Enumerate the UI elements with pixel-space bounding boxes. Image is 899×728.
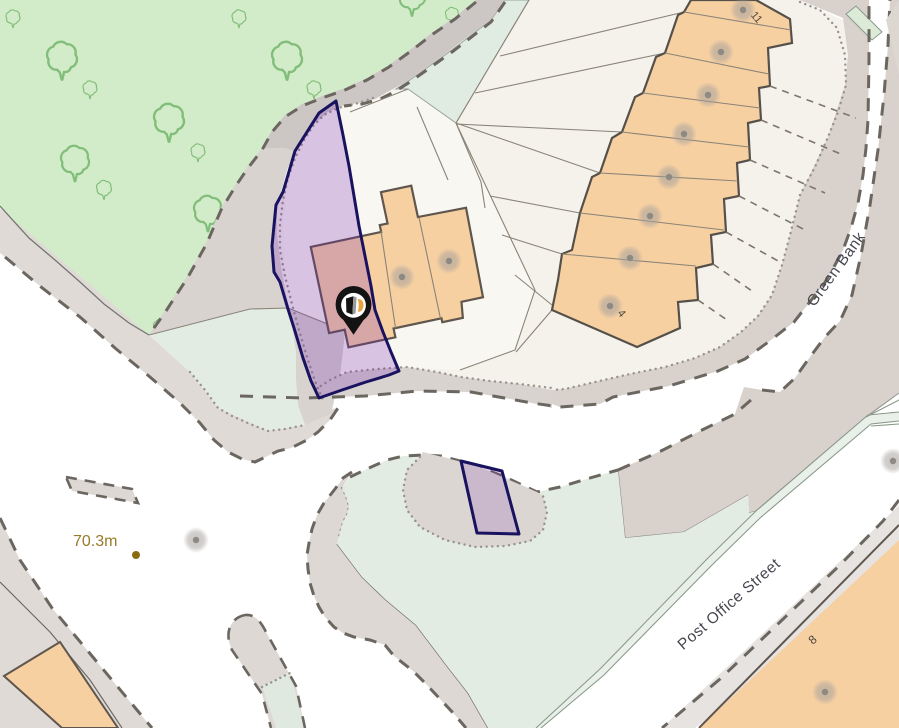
svg-text:70.3m: 70.3m	[73, 533, 117, 550]
